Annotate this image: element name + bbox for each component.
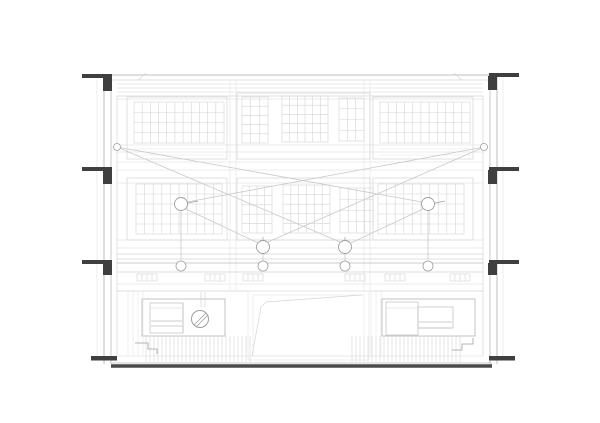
vent-grille-4	[345, 274, 365, 281]
right-cabinet-inner-right	[418, 307, 453, 328]
vent-grille-2	[205, 274, 225, 281]
ground-step-bar-right	[489, 356, 515, 361]
corner-brace-left	[138, 73, 146, 80]
vent-grille-5	[385, 274, 405, 281]
top-center-glazing-left-frame	[242, 97, 268, 143]
top-left-window-glazing	[134, 102, 224, 143]
node-a-circle	[175, 198, 188, 211]
stair-hatch-left	[146, 336, 250, 362]
top-right-window-glazing	[380, 102, 470, 143]
vent-grille-3	[243, 274, 263, 281]
left-cabinet-inner-panel	[150, 303, 183, 333]
right-cabinet-inner-left	[386, 302, 418, 335]
top-center-window-frame	[237, 93, 370, 159]
section-drawing-svg	[0, 0, 600, 423]
wall-louver-left	[128, 291, 143, 355]
step-detail-right	[452, 338, 473, 350]
right-cabinet-outline	[382, 299, 475, 336]
anchor-right-circle	[481, 144, 488, 151]
lower-level-casework	[128, 291, 475, 362]
marker-block-left-l1	[103, 263, 112, 275]
building-shell	[97, 73, 503, 364]
marker-block-right-l1	[488, 263, 497, 275]
mid-center-glazing-left	[242, 186, 272, 233]
ground-step-bar-left	[91, 356, 117, 361]
left-cabinet-outline	[142, 299, 225, 336]
ramp-profile-line	[252, 295, 362, 356]
center-room-outline	[248, 291, 369, 360]
stair-hatch-right	[352, 336, 460, 362]
top-center-glazing-right	[339, 98, 364, 141]
mid-right-window-glazing	[378, 184, 464, 234]
floor-node-b-circle	[423, 261, 433, 271]
vent-grille-6	[450, 274, 470, 281]
node-b-circle	[422, 198, 435, 211]
top-center-glazing-left	[242, 97, 268, 143]
floor-node-c-circle	[258, 261, 268, 271]
wall-louver-right	[371, 291, 381, 357]
cable-rig	[114, 144, 488, 272]
mid-center-glazing-mid	[283, 185, 330, 233]
marker-block-right-roof	[488, 76, 497, 90]
mid-center-glazing-right	[340, 188, 373, 233]
anchor-left-circle	[114, 144, 121, 151]
corner-brace-right	[454, 73, 462, 80]
node-b-tick	[435, 201, 445, 203]
node-c-circle	[257, 241, 270, 254]
upper-window-band	[127, 93, 473, 159]
center-room-inner	[253, 295, 364, 356]
architectural-section-drawing	[0, 0, 600, 423]
floor-node-a-circle	[176, 261, 186, 271]
marker-block-left-l2	[103, 170, 112, 184]
ground-plane	[91, 356, 515, 366]
node-d-circle	[339, 241, 352, 254]
floor-node-d-circle	[340, 261, 350, 271]
marker-block-left-roof	[103, 77, 112, 91]
marker-block-right-l2	[488, 170, 497, 184]
vent-grille-1	[137, 274, 157, 281]
floor-vents	[137, 274, 470, 281]
top-center-glazing-mid	[282, 96, 328, 142]
